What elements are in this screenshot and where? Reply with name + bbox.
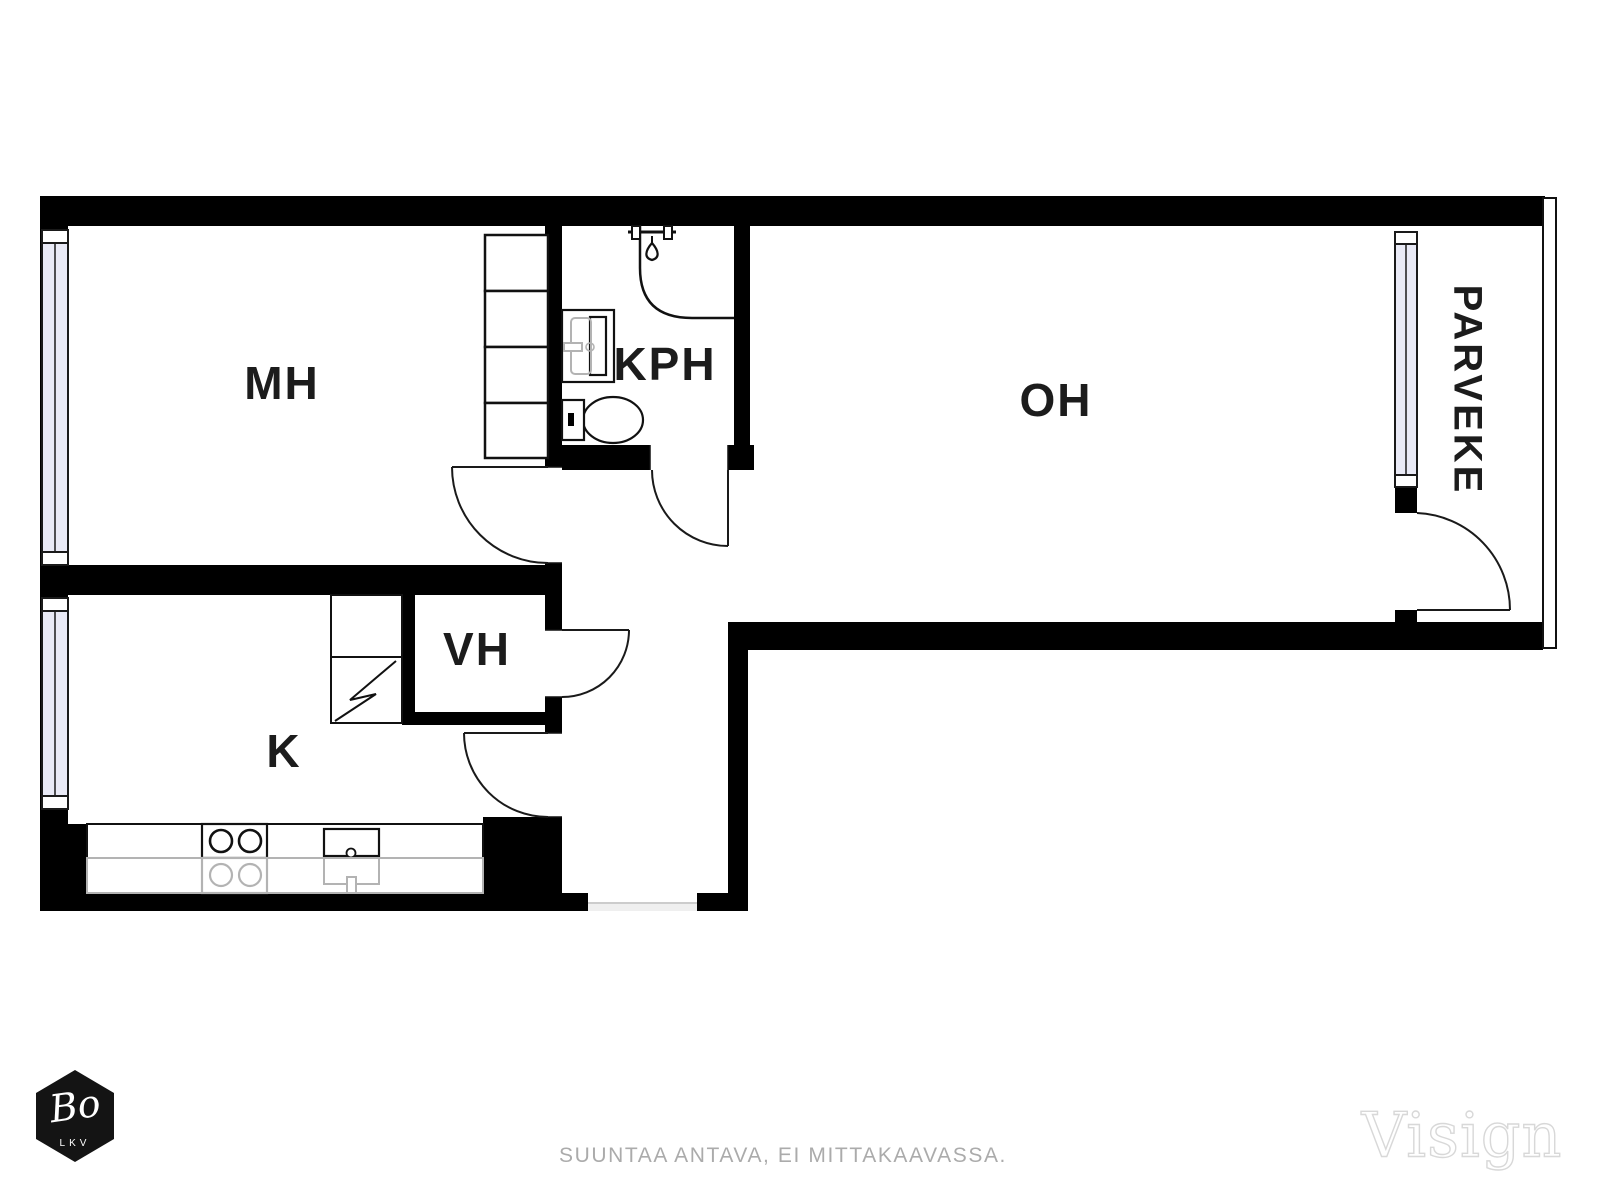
- shower-icon: [628, 226, 734, 318]
- floorplan-page: MH K VH KPH OH PARVEKE SUUNTAA ANTAVA, E…: [0, 0, 1600, 1200]
- balcony-door: [1417, 513, 1510, 610]
- floor-plan-drawing: [0, 0, 1600, 1200]
- visign-watermark: Visign: [1362, 1099, 1563, 1172]
- vh-bottom-wall: [402, 712, 562, 725]
- balcony-jamb-upper: [1395, 487, 1417, 513]
- door-openings: [545, 445, 728, 911]
- oh-balcony-window: [1395, 232, 1417, 487]
- mh-door: [452, 467, 548, 563]
- room-label-oh: OH: [1020, 373, 1093, 427]
- mh-k-divider-wall: [40, 565, 548, 595]
- kph-door: [652, 470, 728, 546]
- entrance-threshold: [588, 904, 697, 911]
- stove-icon: [202, 824, 267, 858]
- logo-sub-text: LKV: [60, 1138, 91, 1149]
- mh-door-opening: [545, 467, 562, 563]
- room-label-mh: MH: [244, 356, 320, 410]
- kph-right-wall: [734, 226, 750, 470]
- kph-door-opening: [650, 445, 728, 470]
- oh-bottom-wall: [728, 622, 1543, 650]
- kitchen-cabinet: [331, 595, 402, 657]
- room-label-k: K: [266, 724, 301, 778]
- fridge-icon: [331, 595, 402, 723]
- top-wall: [40, 196, 1545, 226]
- kitchen-sink-icon: [324, 829, 379, 858]
- kitchen-corner-block: [483, 817, 562, 911]
- washbasin-icon: [562, 310, 614, 382]
- k-door: [464, 733, 548, 817]
- room-label-kph: KPH: [613, 337, 716, 391]
- wardrobe-icon: [485, 235, 548, 458]
- room-label-parveke: PARVEKE: [1445, 285, 1490, 496]
- hall-right-wall: [728, 622, 748, 911]
- disclaimer-text: SUUNTAA ANTAVA, EI MITTAKAAVASSA.: [559, 1144, 1007, 1168]
- room-label-vh: VH: [443, 622, 511, 676]
- kitchen-lower-cabinets: [87, 858, 483, 893]
- mh-window: [42, 230, 68, 565]
- balcony-outer-wall: [1543, 198, 1556, 648]
- door-jamb-lines: [545, 445, 728, 903]
- toilet-icon: [562, 397, 643, 443]
- walls: [40, 196, 1545, 911]
- k-window: [42, 598, 68, 809]
- kitchen-counter: [87, 824, 483, 893]
- k-door-opening: [545, 733, 562, 817]
- bo-lkv-logo: Bo LKV: [35, 1070, 115, 1162]
- vh-door: [562, 630, 629, 697]
- vh-door-opening: [545, 630, 562, 697]
- vh-left-wall: [402, 595, 415, 725]
- shower-enclosure: [640, 226, 734, 318]
- balcony-jamb-lower: [1395, 610, 1417, 622]
- logo-script-text: Bo: [47, 1084, 103, 1129]
